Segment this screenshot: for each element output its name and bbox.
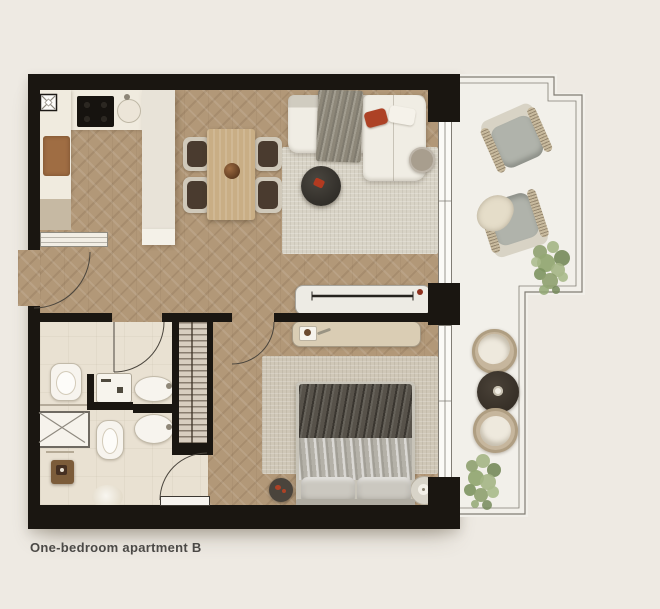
pouf [473,408,518,453]
wall-mid-center [162,313,232,322]
wall-left-upper [28,74,40,250]
floor-plan: One-bedroom apartment B [0,0,660,609]
nightstand-tray-left [269,478,293,502]
towel-rail [46,451,74,453]
kitchen-sink [117,99,141,123]
cutting-board [43,136,70,176]
wall-bedroom-bath [207,322,213,443]
plan-caption: One-bedroom apartment B [30,540,202,555]
wall-bath-partition-h2 [133,404,173,413]
wall-left-lower [28,306,40,529]
table-bowl [224,163,240,179]
wall-mid-right [274,313,438,322]
kitchen-cabinet [40,199,71,230]
wall-pier-bottom-right [428,477,460,529]
bed-sheet [299,438,412,480]
door-panel-bathroom [160,496,210,506]
throw-blanket [316,89,363,163]
wall-top [28,74,460,90]
wall-mid-left [40,313,112,322]
bed-blanket-dark [299,384,412,440]
tv-console [295,285,431,315]
lounge-chair [477,100,555,177]
kitchen-faucet [124,94,130,100]
sideboard-cup [304,329,311,336]
tray-decor-red [282,489,286,493]
wall-bath-partition-h1 [87,402,133,410]
pouf-cushion [476,412,515,451]
plant-lower [464,454,501,510]
dining-chair [254,137,282,171]
washbasin [134,376,174,402]
outdoor-table [477,371,519,413]
tv-console-decor [417,289,423,295]
shower-tray [38,411,90,448]
toilet [50,363,82,401]
wall-pier-top-right [428,74,460,122]
glass-partition [40,404,87,406]
pouf [472,329,517,374]
stool-decor-dot [60,468,64,472]
wall-wardrobe-left [172,322,179,455]
table-cup [493,386,503,396]
pouf-cushion [475,330,514,367]
kitchen-island-end [142,229,175,245]
plant-upper [531,241,570,295]
cooktop [77,96,114,127]
side-table [409,147,435,173]
toilet [96,420,124,460]
dining-chair [254,177,282,213]
tray-decor-red [275,485,281,490]
wall-wardrobe-bottom [172,443,213,455]
washing-machine [96,373,132,403]
wall-bottom [28,505,460,529]
entrance-threshold [18,250,40,306]
entry-bench [40,232,108,247]
kitchen-island [142,90,175,231]
candle-wick [422,488,425,491]
built-in-wardrobe [179,322,207,443]
